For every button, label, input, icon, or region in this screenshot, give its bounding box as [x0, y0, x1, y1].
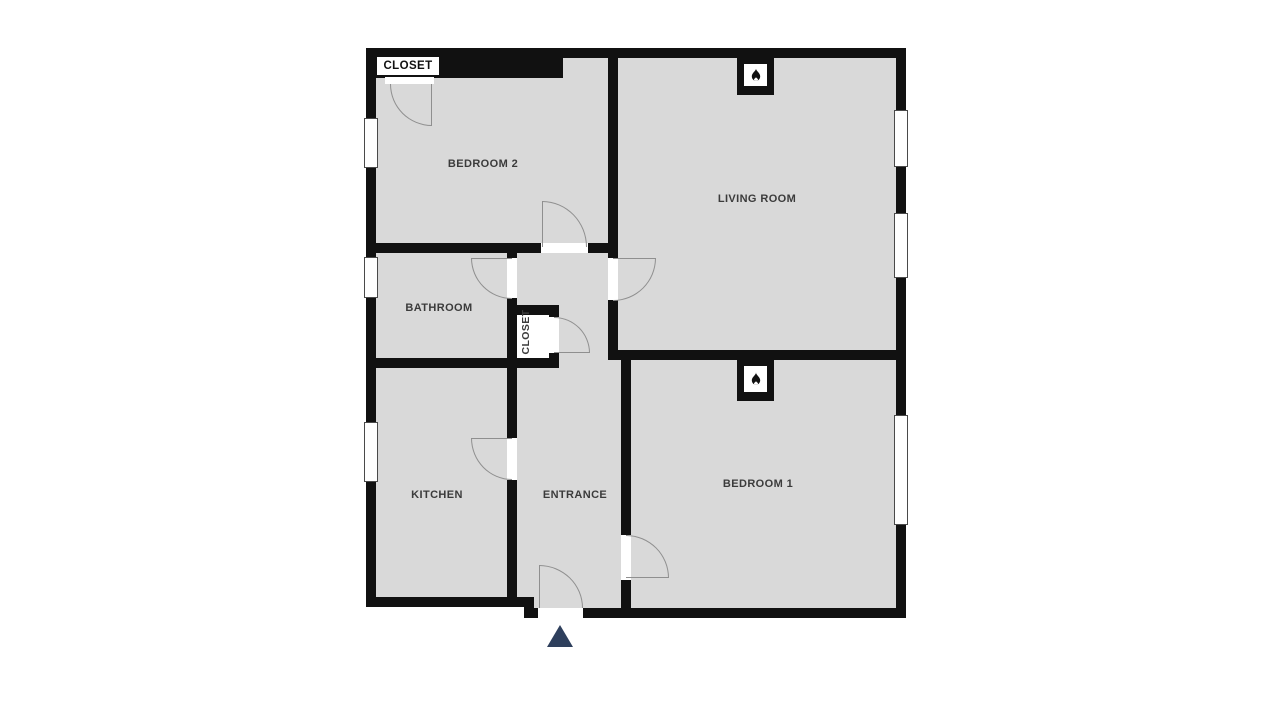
doorway-main-entrance — [538, 608, 583, 618]
window-living-2 — [894, 213, 908, 278]
entrance-arrow-icon — [547, 625, 573, 647]
door-arc-bedroom1 — [626, 535, 669, 578]
fireplace-icon — [737, 58, 774, 95]
window-living-1 — [894, 110, 908, 167]
floor-plan-canvas: CLOSET BEDROOM 2 LIVING ROOM BATHROOM CL… — [0, 0, 1280, 720]
wall-kitchen-entrance — [507, 368, 517, 607]
wall-living-bottom — [608, 350, 896, 360]
door-arc-hall-closet — [554, 317, 590, 353]
door-arc-bedroom2 — [542, 201, 587, 247]
wall-bedroom2-living — [608, 58, 618, 360]
room-label-bedroom1: BEDROOM 1 — [723, 478, 793, 490]
door-arc-bedroom2-closet — [390, 84, 432, 126]
room-label-bedroom2: BEDROOM 2 — [448, 158, 518, 170]
window-kitchen — [364, 422, 378, 482]
flame-icon — [744, 366, 767, 392]
room-label-entrance: ENTRANCE — [543, 489, 607, 501]
door-arc-living — [613, 258, 656, 301]
flame-icon — [744, 64, 767, 86]
window-bedroom1 — [894, 415, 908, 525]
room-label-hall-closet: CLOSET — [520, 310, 532, 355]
floor-plan: CLOSET BEDROOM 2 LIVING ROOM BATHROOM CL… — [366, 48, 906, 618]
room-label-kitchen: KITCHEN — [411, 489, 463, 501]
window-bedroom2 — [364, 118, 378, 168]
bedroom2-closet-label: CLOSET — [375, 55, 441, 77]
fireplace-icon — [737, 360, 774, 401]
wall-bathroom-bottom — [376, 358, 559, 368]
room-label-living: LIVING ROOM — [718, 193, 796, 205]
door-arc-kitchen — [471, 438, 512, 480]
room-label-bathroom: BATHROOM — [405, 302, 472, 314]
door-arc-bathroom — [471, 258, 512, 299]
door-arc-main-entrance — [539, 565, 583, 608]
window-bathroom — [364, 257, 378, 298]
exterior-notch — [366, 607, 524, 618]
